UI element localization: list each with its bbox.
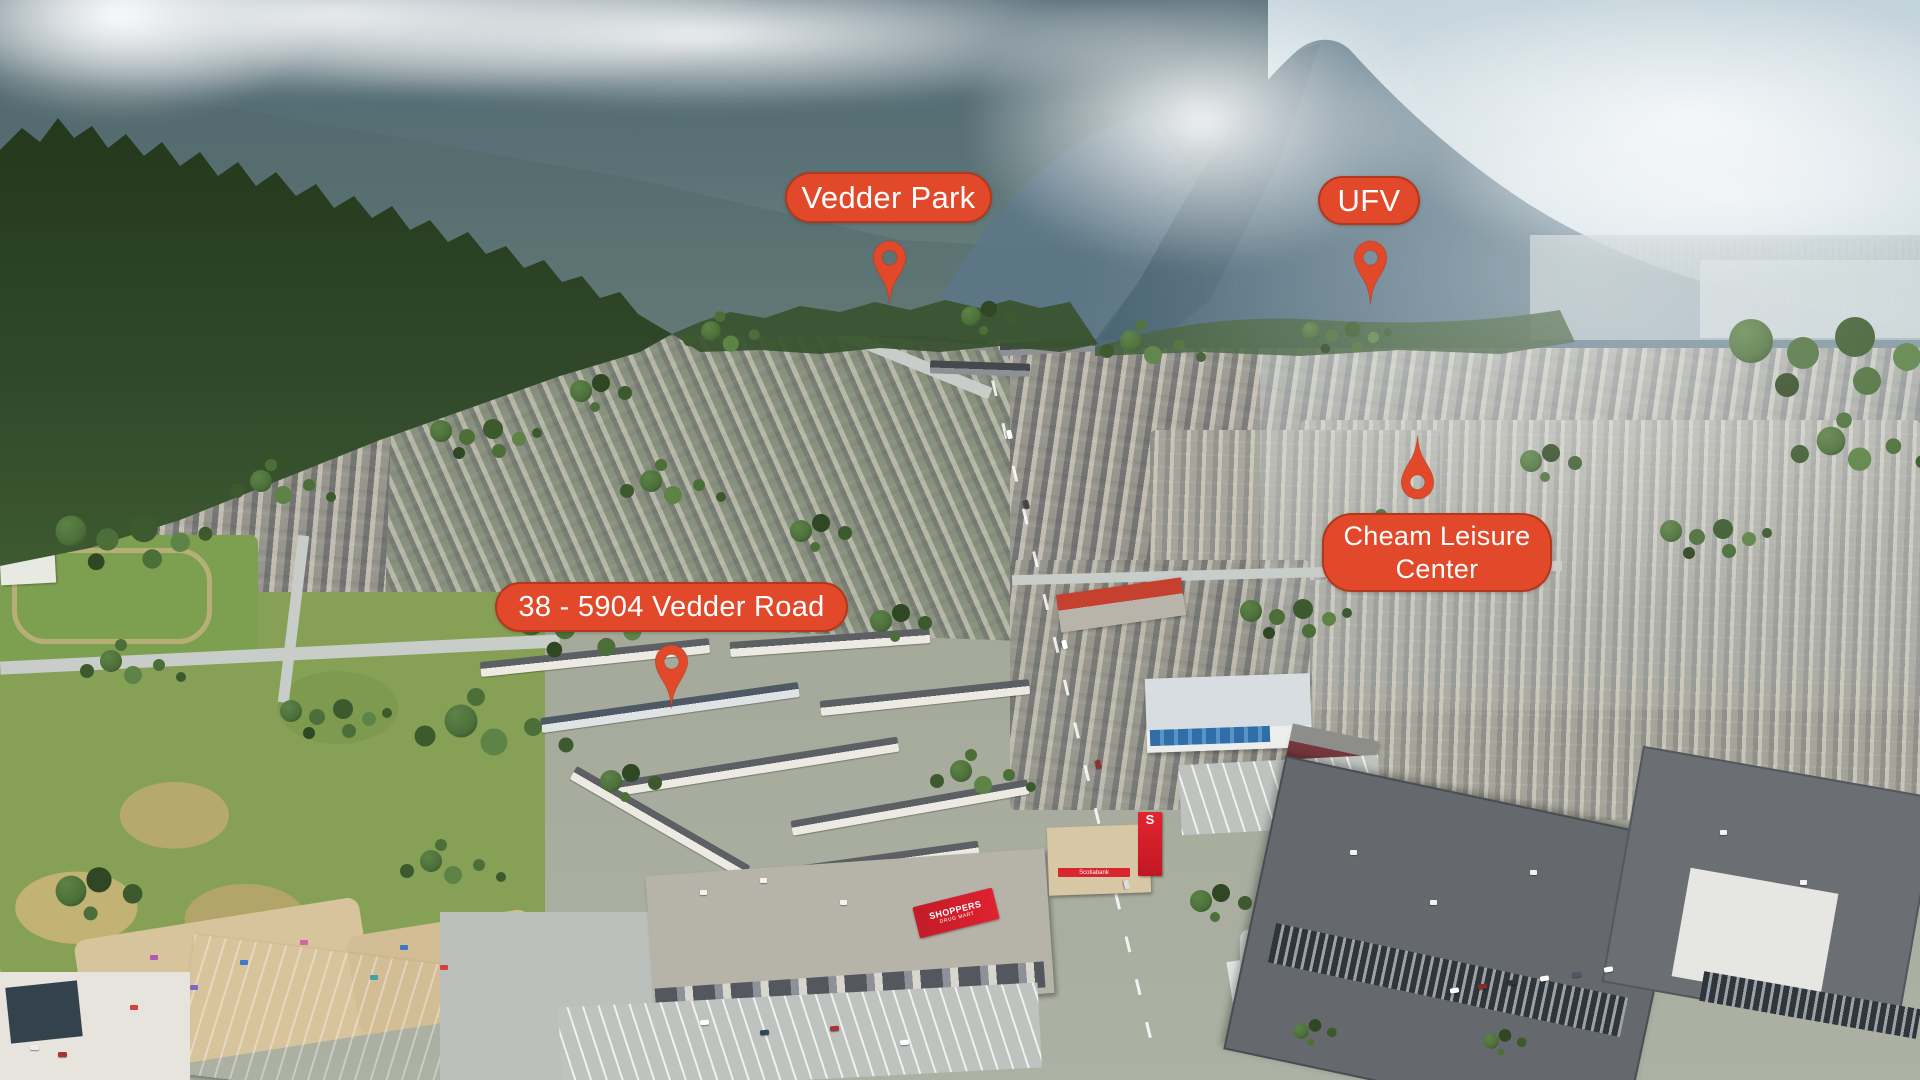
- property-address-label[interactable]: 38 - 5904 Vedder Road: [495, 582, 848, 632]
- rooftop-hvac-unit: [760, 878, 767, 883]
- tree-cluster: [790, 520, 812, 542]
- tree-cluster: [250, 470, 272, 492]
- shrub-row: [1483, 1033, 1498, 1048]
- rooftop-hvac-unit: [1530, 870, 1537, 875]
- solar-panel-roof: [5, 980, 82, 1043]
- scotiabank-sign-text: Scotiabank: [1079, 870, 1109, 876]
- car: [58, 1052, 67, 1057]
- rooftop-hvac-unit: [1800, 880, 1807, 885]
- play-structure: [400, 945, 408, 950]
- ufv-map-pin-icon[interactable]: [1352, 236, 1389, 310]
- cheam-leisure-center-label[interactable]: Cheam Leisure Center: [1322, 513, 1552, 592]
- property-address-label-text: 38 - 5904 Vedder Road: [518, 590, 824, 625]
- play-structure: [300, 940, 308, 945]
- tree-cluster: [1729, 319, 1773, 363]
- tree-cluster: [961, 306, 981, 326]
- tree-cluster: [430, 420, 452, 442]
- tree-cluster: [100, 650, 122, 672]
- vedder-park-label[interactable]: Vedder Park: [785, 172, 992, 223]
- tree-cluster: [56, 876, 87, 907]
- rooftop-hvac-unit: [1720, 830, 1727, 835]
- car: [830, 1026, 839, 1032]
- tree-cluster: [1520, 450, 1542, 472]
- ufv-label-text: UFV: [1338, 182, 1401, 219]
- scotiabank-sign-band: Scotiabank: [1058, 868, 1130, 877]
- property-map-pin-icon[interactable]: [653, 641, 690, 713]
- tree-cluster: [950, 760, 972, 782]
- tree-cluster: [1190, 890, 1212, 912]
- vedder-park-label-text: Vedder Park: [802, 179, 976, 216]
- ufv-label[interactable]: UFV: [1318, 176, 1420, 225]
- cheam-leisure-center-label-text: Cheam Leisure Center: [1338, 520, 1536, 585]
- tree-cluster: [870, 610, 892, 632]
- aerial-photo: SHOPPERS DRUG MART Scotiabank S: [0, 0, 1920, 1080]
- school-building-small: [0, 537, 56, 586]
- tree-cluster: [1302, 322, 1320, 340]
- rooftop-hvac-unit: [840, 900, 847, 905]
- tree-cluster: [570, 380, 592, 402]
- rooftop-hvac-unit: [1430, 900, 1437, 905]
- rooftop-hvac-unit: [700, 890, 707, 895]
- play-structure: [370, 975, 378, 980]
- rooftop-hvac-unit: [1350, 850, 1357, 855]
- car: [760, 1030, 769, 1036]
- car: [700, 1020, 709, 1026]
- tree-cluster: [1240, 600, 1262, 622]
- tree-cluster: [640, 470, 662, 492]
- tree-cluster: [280, 700, 302, 722]
- tree-cluster: [701, 321, 721, 341]
- play-structure: [130, 1005, 138, 1010]
- tree-cluster: [600, 770, 622, 792]
- scotiabank-sign-tower: S: [1138, 812, 1162, 876]
- shrub-row: [1293, 1023, 1308, 1038]
- cheam-leisure-center-map-pin-icon[interactable]: [1399, 430, 1436, 504]
- play-structure: [440, 965, 448, 970]
- car: [30, 1045, 39, 1050]
- play-structure: [190, 985, 198, 990]
- scotiabank-logo: S: [1146, 812, 1155, 827]
- tree-cluster: [1817, 427, 1846, 456]
- tree-cluster: [445, 705, 478, 738]
- tree-cluster: [56, 516, 87, 547]
- tree-cluster: [420, 850, 442, 872]
- play-structure: [150, 955, 158, 960]
- play-structure: [240, 960, 248, 965]
- scotiabank-building: [1047, 824, 1151, 896]
- vedder-park-map-pin-icon[interactable]: [871, 236, 908, 310]
- tree-cluster: [1120, 330, 1142, 352]
- tree-cluster: [1660, 520, 1682, 542]
- car: [900, 1040, 909, 1046]
